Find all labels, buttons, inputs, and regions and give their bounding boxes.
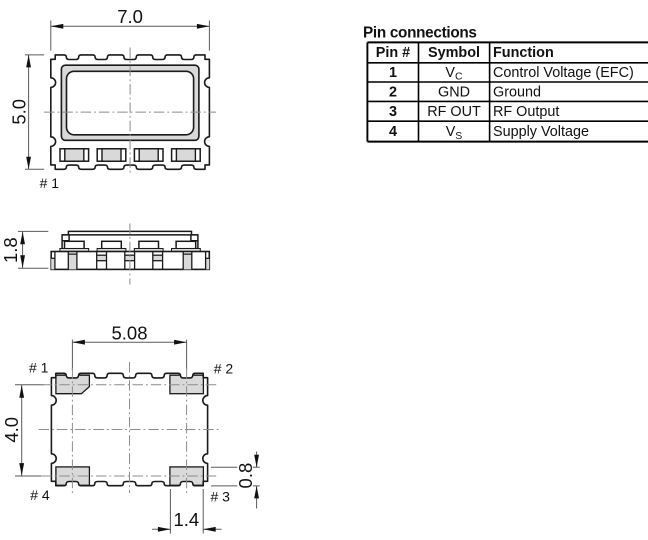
svg-text:GND: GND [438, 85, 470, 101]
svg-text:Pin connections: Pin connections [363, 25, 477, 42]
svg-text:3: 3 [389, 104, 397, 120]
svg-text:RF OUT: RF OUT [427, 104, 481, 120]
svg-text:7.0: 7.0 [117, 6, 143, 27]
svg-text:# 4: # 4 [30, 487, 50, 503]
svg-text:Supply Voltage: Supply Voltage [493, 124, 589, 140]
svg-text:Symbol: Symbol [428, 45, 480, 61]
svg-text:1.8: 1.8 [0, 237, 21, 263]
svg-text:RF Output: RF Output [493, 104, 559, 120]
svg-text:VS: VS [446, 124, 463, 142]
svg-text:1: 1 [389, 65, 397, 81]
svg-text:0.8: 0.8 [235, 463, 256, 489]
svg-text:# 2: # 2 [214, 360, 234, 376]
svg-text:Function: Function [493, 45, 554, 61]
svg-text:Pin #: Pin # [376, 45, 410, 61]
svg-text:1.4: 1.4 [173, 509, 199, 530]
svg-text:# 1: # 1 [40, 175, 60, 191]
svg-text:# 1: # 1 [29, 360, 49, 376]
svg-text:5.08: 5.08 [111, 322, 147, 343]
svg-text:Ground: Ground [493, 85, 541, 101]
svg-text:# 3: # 3 [211, 489, 231, 505]
svg-text:4: 4 [389, 124, 397, 140]
svg-text:Control Voltage (EFC): Control Voltage (EFC) [493, 65, 634, 81]
svg-text:5.0: 5.0 [8, 99, 29, 125]
svg-text:VC: VC [445, 65, 463, 83]
svg-text:4.0: 4.0 [1, 417, 22, 443]
svg-text:2: 2 [389, 85, 397, 101]
